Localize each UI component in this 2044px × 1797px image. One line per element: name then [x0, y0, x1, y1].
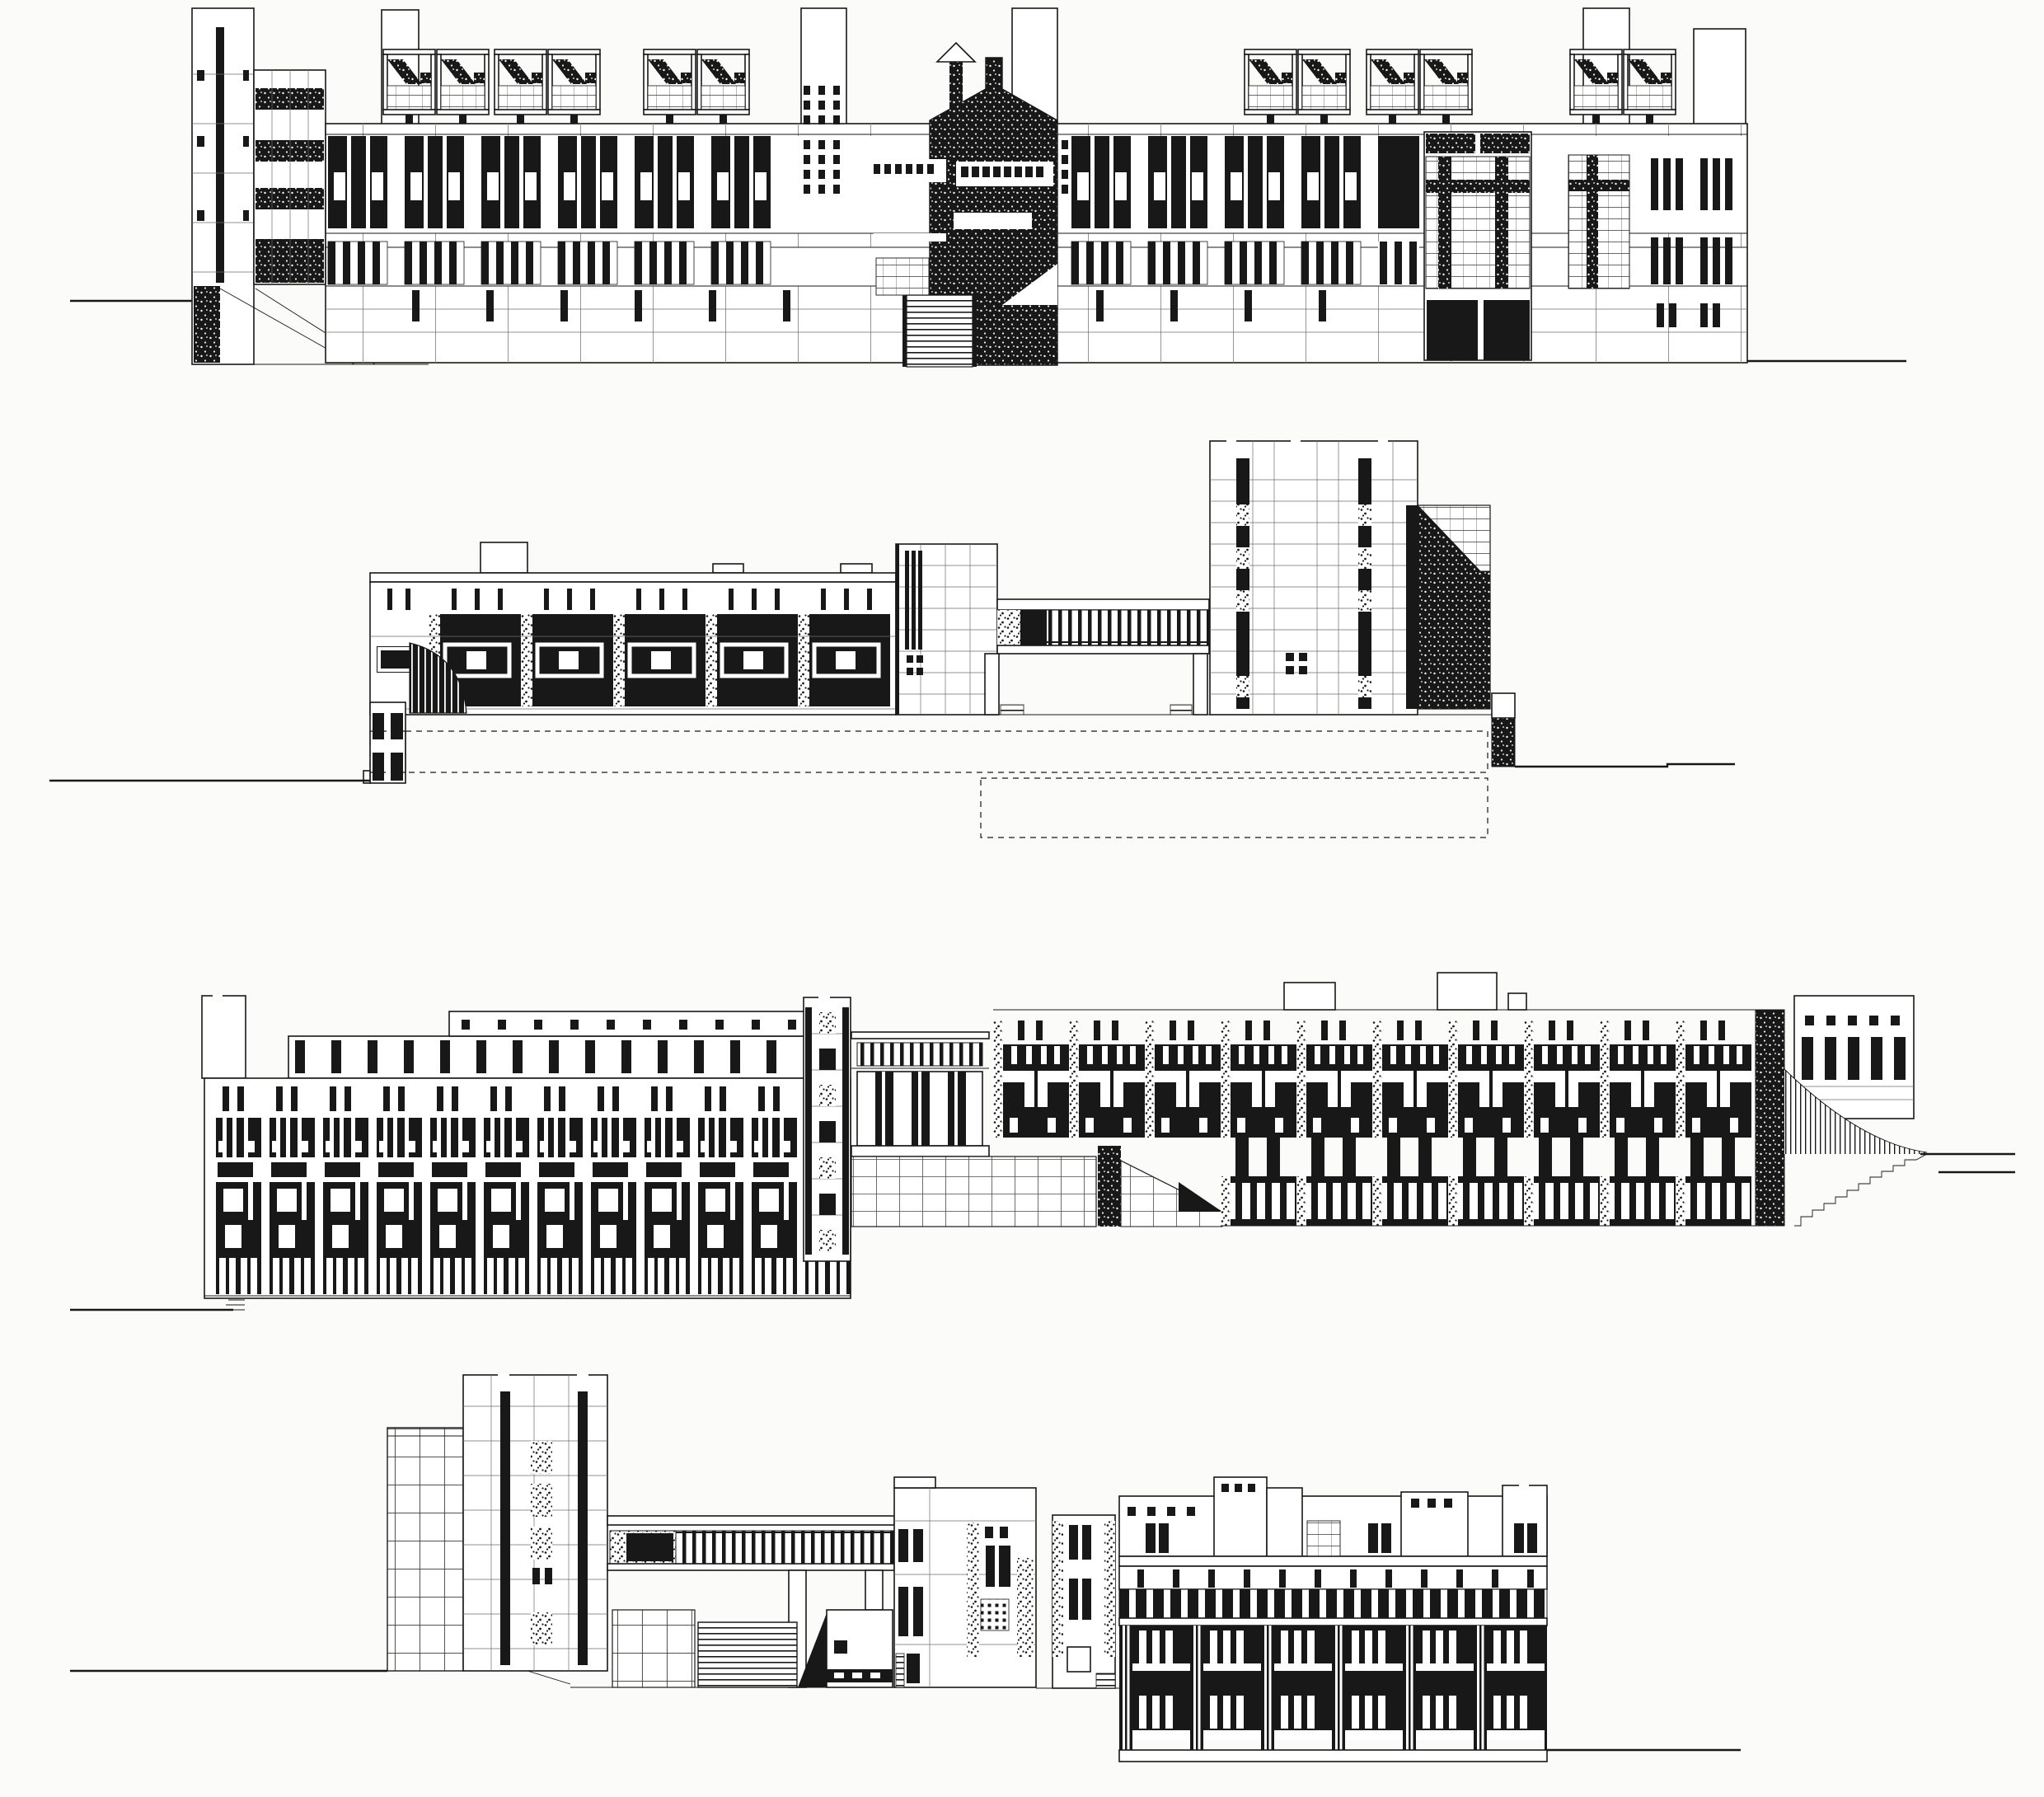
e2-mid-grid-block [896, 544, 997, 715]
e4-bridge-pier [865, 1570, 883, 1610]
e1-corner-window-block [1424, 132, 1531, 360]
e4-right-block [1119, 1477, 1547, 1762]
e2-tower [1210, 439, 1418, 715]
elevations-canvas [0, 0, 2044, 1797]
scanned-drawing-sheet [0, 0, 2044, 1797]
e4-center-pavilion [894, 1477, 1036, 1687]
e1-garage-door [1484, 300, 1530, 360]
e2-bridge-pier [1193, 654, 1207, 715]
e4-grid-slab [387, 1428, 463, 1671]
e3-left-block [202, 994, 851, 1310]
e1-entry-stair [902, 295, 977, 367]
e1-small-grid-window [1568, 155, 1629, 289]
e3-campanile [804, 996, 851, 1261]
e4-tower [463, 1373, 607, 1684]
e1-garage-door [1427, 300, 1478, 360]
e4-grand-stair [698, 1622, 797, 1687]
e2-bridge-pier [985, 654, 999, 715]
